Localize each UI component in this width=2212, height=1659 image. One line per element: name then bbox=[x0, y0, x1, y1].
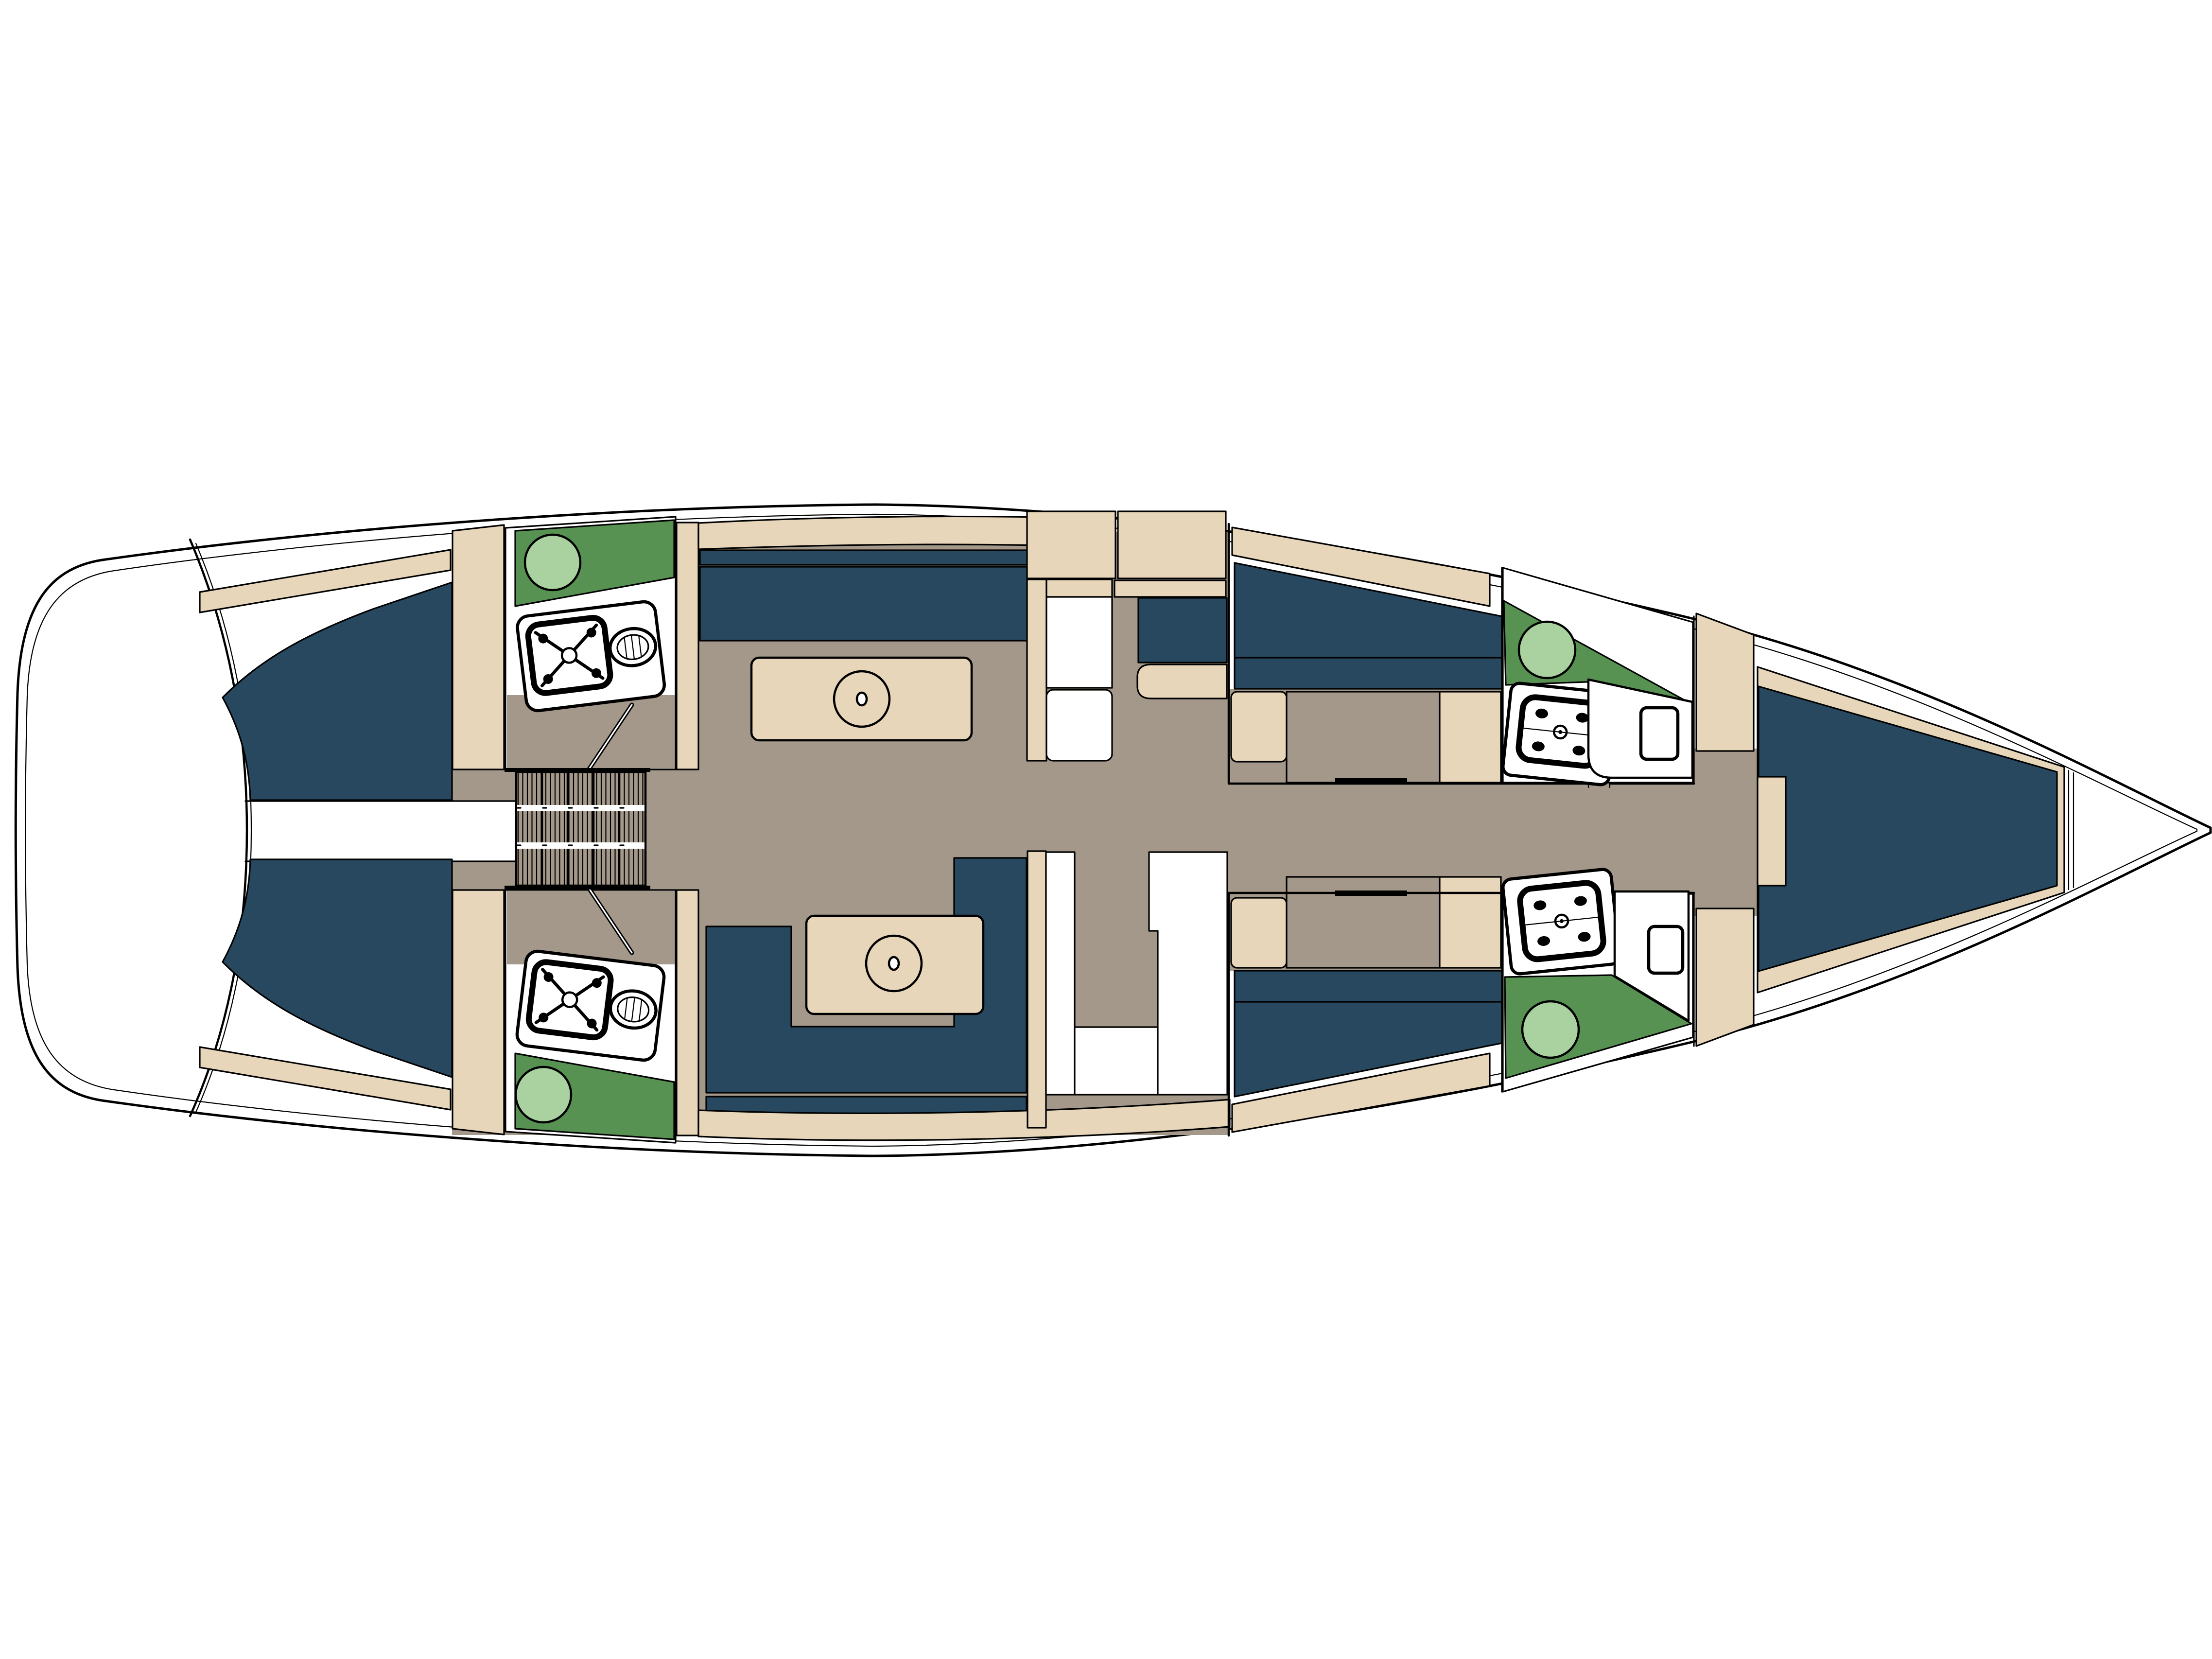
stair-grate bbox=[516, 772, 645, 886]
cabinet-shelf-row bbox=[1115, 580, 1226, 597]
mid-cabin-port-locker-aft bbox=[1231, 692, 1287, 762]
aft-head-starboard-basin bbox=[516, 1067, 571, 1122]
galley-divider bbox=[1028, 851, 1046, 1128]
mid-cabin-port-desk bbox=[1287, 692, 1440, 783]
floor-plan-drawing bbox=[0, 0, 2212, 1659]
cabinet-port-aft bbox=[1027, 511, 1115, 578]
cabinet-port-fwd bbox=[1118, 511, 1226, 578]
aft-head-starboard bbox=[505, 889, 676, 1143]
forward-head-port-sink bbox=[1641, 708, 1678, 759]
forward-head-starboard bbox=[1502, 869, 1693, 1092]
wardrobe-port bbox=[1696, 613, 1754, 751]
cabinet-divider-port bbox=[1027, 579, 1046, 761]
stern-walkway bbox=[245, 801, 516, 861]
mid-cabin-starboard-locker-fwd bbox=[1440, 877, 1501, 968]
nav-seat bbox=[1138, 598, 1227, 663]
aft-head-port-shower bbox=[516, 600, 666, 712]
counter-top-row bbox=[1046, 579, 1112, 597]
settee-port-seat bbox=[700, 567, 1028, 641]
forward-lobby-floor bbox=[1691, 749, 1759, 916]
nav-desk bbox=[1137, 664, 1227, 699]
mid-cabin-starboard-locker-aft bbox=[1231, 898, 1287, 968]
stair-tread-band bbox=[517, 805, 644, 811]
forward-head-starboard-sink bbox=[1649, 926, 1683, 973]
aft-head-port-basin bbox=[525, 535, 580, 590]
bulkhead-aft-port bbox=[453, 525, 504, 769]
shower-drain bbox=[561, 992, 577, 1008]
bulkhead-salon-starboard bbox=[677, 890, 698, 1135]
door-sill-starboard bbox=[1335, 891, 1407, 896]
bulkhead-salon-port bbox=[677, 523, 698, 769]
forward-head-starboard-shower bbox=[1502, 869, 1620, 975]
table-cup-starboard-center bbox=[889, 957, 899, 970]
companionway-stairs bbox=[505, 768, 650, 890]
aft-head-starboard-shower bbox=[516, 950, 665, 1061]
bulkhead-aft-starboard bbox=[453, 890, 504, 1135]
forward-head-port-basin bbox=[1519, 622, 1575, 678]
aft-head-port bbox=[505, 517, 676, 769]
mid-cabin-port-locker-fwd bbox=[1440, 692, 1501, 783]
forward-head-starboard-basin bbox=[1522, 1001, 1579, 1058]
stair-tread-band bbox=[517, 842, 644, 849]
counter-block-port-1 bbox=[1046, 597, 1112, 688]
shower-drain bbox=[561, 647, 577, 664]
table-cup-port-center bbox=[857, 693, 867, 705]
door-sill-port bbox=[1335, 778, 1407, 784]
wardrobe-starboard bbox=[1696, 908, 1754, 1046]
settee-port-backrest bbox=[700, 550, 1028, 565]
forward-head-port bbox=[1502, 568, 1693, 786]
counter-block-port-2 bbox=[1046, 690, 1112, 761]
boat-floor-plan bbox=[0, 0, 2212, 1659]
v-berth-entry-step bbox=[1758, 777, 1786, 886]
